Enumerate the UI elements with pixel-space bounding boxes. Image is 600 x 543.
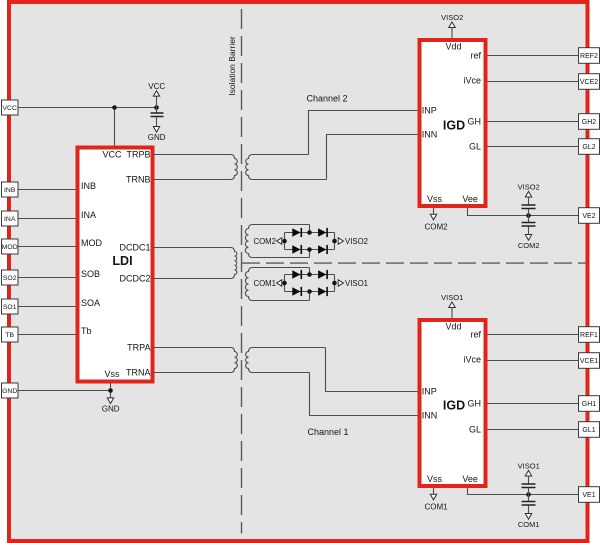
svg-text:COM2: COM2 bbox=[518, 241, 540, 250]
svg-text:Vss: Vss bbox=[427, 474, 443, 484]
svg-text:INP: INP bbox=[422, 105, 437, 115]
svg-text:VE1: VE1 bbox=[582, 492, 595, 499]
svg-text:VE2: VE2 bbox=[582, 213, 595, 220]
svg-text:VISO1: VISO1 bbox=[441, 293, 463, 302]
svg-text:INA: INA bbox=[4, 216, 16, 223]
svg-text:Vdd: Vdd bbox=[445, 322, 461, 332]
svg-text:INB: INB bbox=[81, 181, 96, 191]
svg-text:GH: GH bbox=[468, 399, 482, 409]
svg-text:TRPB: TRPB bbox=[126, 150, 150, 160]
svg-text:VCC: VCC bbox=[148, 82, 165, 91]
svg-text:GH1: GH1 bbox=[582, 401, 597, 408]
svg-text:ref: ref bbox=[470, 330, 481, 340]
svg-text:REF2: REF2 bbox=[580, 53, 598, 60]
svg-text:TRNA: TRNA bbox=[126, 368, 151, 378]
svg-text:SO1: SO1 bbox=[3, 304, 17, 311]
svg-text:GND: GND bbox=[148, 133, 166, 142]
svg-text:INB: INB bbox=[4, 187, 16, 194]
svg-text:INN: INN bbox=[422, 410, 438, 420]
svg-text:VISO1: VISO1 bbox=[518, 462, 540, 471]
svg-text:COM2: COM2 bbox=[253, 237, 276, 246]
svg-text:SOB: SOB bbox=[81, 269, 100, 279]
svg-text:GND: GND bbox=[102, 404, 120, 413]
svg-text:ref: ref bbox=[470, 51, 481, 61]
svg-text:TRNB: TRNB bbox=[126, 175, 151, 185]
svg-text:IGD: IGD bbox=[443, 119, 465, 133]
svg-text:Vdd: Vdd bbox=[445, 42, 461, 52]
svg-text:REF1: REF1 bbox=[580, 332, 598, 339]
svg-text:Isolation Barrier: Isolation Barrier bbox=[227, 36, 237, 96]
svg-text:Vss: Vss bbox=[104, 369, 120, 379]
svg-text:iVce: iVce bbox=[463, 76, 481, 86]
svg-text:LDI: LDI bbox=[112, 254, 132, 268]
svg-text:TB: TB bbox=[5, 332, 14, 339]
svg-text:Vss: Vss bbox=[427, 194, 443, 204]
svg-text:INP: INP bbox=[422, 386, 437, 396]
svg-text:GH2: GH2 bbox=[582, 119, 597, 126]
svg-text:SOA: SOA bbox=[81, 298, 100, 308]
svg-text:GL2: GL2 bbox=[582, 144, 595, 151]
svg-text:COM1: COM1 bbox=[253, 279, 276, 288]
svg-text:iVce: iVce bbox=[463, 355, 481, 365]
svg-text:Vee: Vee bbox=[462, 194, 478, 204]
svg-text:GH: GH bbox=[468, 117, 482, 127]
svg-text:COM1: COM1 bbox=[518, 520, 540, 529]
svg-text:VCE1: VCE1 bbox=[580, 358, 598, 365]
svg-text:TRPA: TRPA bbox=[127, 343, 150, 353]
svg-text:DCDC1: DCDC1 bbox=[119, 243, 150, 253]
svg-text:GL1: GL1 bbox=[582, 427, 595, 434]
svg-text:INA: INA bbox=[81, 210, 96, 220]
svg-text:DCDC2: DCDC2 bbox=[119, 274, 150, 284]
svg-text:VCE2: VCE2 bbox=[580, 79, 598, 86]
svg-text:VCC: VCC bbox=[102, 150, 122, 160]
svg-text:COM2: COM2 bbox=[424, 222, 448, 231]
svg-text:Tb: Tb bbox=[81, 326, 92, 336]
svg-text:Vee: Vee bbox=[462, 474, 478, 484]
svg-text:GND: GND bbox=[2, 388, 17, 395]
svg-text:GL: GL bbox=[469, 425, 481, 435]
svg-text:VCC: VCC bbox=[3, 105, 17, 112]
svg-text:COM1: COM1 bbox=[424, 502, 448, 511]
svg-text:IGD: IGD bbox=[443, 399, 465, 413]
svg-text:VISO1: VISO1 bbox=[345, 279, 368, 288]
svg-text:VISO2: VISO2 bbox=[518, 183, 540, 192]
svg-text:MOD: MOD bbox=[2, 244, 18, 251]
svg-text:Channel 1: Channel 1 bbox=[307, 427, 348, 437]
svg-text:SO2: SO2 bbox=[3, 275, 17, 282]
svg-text:MOD: MOD bbox=[81, 238, 102, 248]
svg-text:VISO2: VISO2 bbox=[441, 13, 463, 22]
svg-text:INN: INN bbox=[422, 129, 438, 139]
svg-text:VISO2: VISO2 bbox=[345, 237, 368, 246]
svg-text:GL: GL bbox=[469, 142, 481, 152]
svg-text:Channel 2: Channel 2 bbox=[306, 94, 347, 104]
